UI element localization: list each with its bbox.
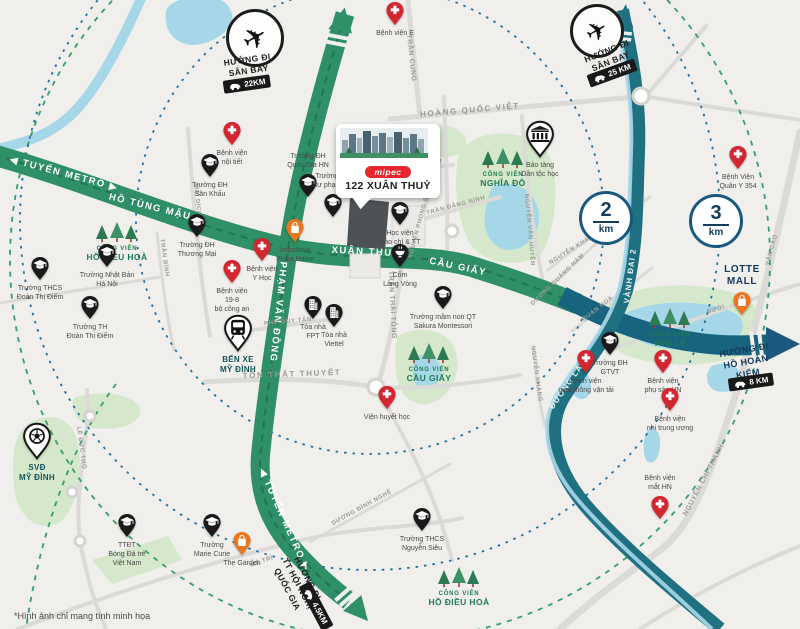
trees-icon <box>437 567 481 589</box>
poi-label: LOTTE MALL <box>682 264 800 288</box>
poi-label: Bệnh viện 19-8 bộ công an <box>172 287 292 314</box>
school-pin-icon <box>600 331 620 356</box>
project-building-image <box>340 128 428 158</box>
trees-icon <box>95 222 139 244</box>
museum-pin-icon <box>525 120 555 158</box>
poi-label: Trường ĐH GTVT <box>550 359 670 377</box>
poi-label: Bệnh viện mắt HN <box>600 474 720 492</box>
poi-label: Trường Marie Curie <box>152 541 272 559</box>
hospital-pin-icon <box>660 387 680 412</box>
school-pin-icon <box>30 256 50 281</box>
school-pin-icon <box>200 153 220 178</box>
school-pin-icon <box>117 513 137 538</box>
poi-label: SVĐ MỸ ĐÌNH <box>0 463 97 484</box>
hospital-pin-icon <box>650 495 670 520</box>
poi-label: Bệnh Viện Quân Y 354 <box>678 173 798 191</box>
mall-pin-icon <box>285 218 305 243</box>
park-label: CÔNG VIÊNHỒ ĐIỀU HOÀ <box>404 591 514 607</box>
poi-label: Tòa nhà Viettel <box>274 331 394 349</box>
school-pin-icon <box>187 213 207 238</box>
poi-label: Indochina Plaza Hanoi <box>235 246 355 264</box>
car-icon <box>303 587 316 602</box>
park-label: CÔNG VIÊNCẦU GIẤY <box>374 367 484 383</box>
trees-icon <box>648 308 692 330</box>
mall-pin-icon <box>732 291 752 316</box>
hospital-pin-icon <box>377 385 397 410</box>
distance-badge-3km: 3km <box>689 194 743 248</box>
office-pin-icon <box>324 303 344 328</box>
project-title: 122 XUÂN THUỶ <box>340 180 436 192</box>
distance-unit: km <box>599 223 613 236</box>
mall-pin-icon <box>232 531 252 556</box>
poi-label: Trường THCS Nguyễn Siêu <box>362 535 482 553</box>
bowl-pin-icon <box>390 243 410 268</box>
trees-icon <box>407 343 451 365</box>
school-pin-icon <box>390 201 410 226</box>
school-pin-icon <box>202 513 222 538</box>
hospital-pin-icon <box>222 121 242 146</box>
project-callout[interactable]: mipec 122 XUÂN THUỶ <box>336 124 440 198</box>
location-map: ◀ TUYẾN METRO ▶HỒ TÙNG MẬUXUÂN THUỶCẦU G… <box>0 0 800 629</box>
school-pin-icon <box>97 243 117 268</box>
park-label: CÔNG VIÊNTHỦ LỆ <box>615 332 725 348</box>
school-pin-icon <box>412 507 432 532</box>
poi-label: Bệnh viện E <box>335 29 455 38</box>
school-pin-icon <box>433 285 453 310</box>
distance-unit: km <box>709 226 723 239</box>
office-pin-icon <box>303 295 323 320</box>
poi-label: Viện huyết học <box>327 413 447 422</box>
poi-label: Bệnh viện Y Học <box>202 265 322 283</box>
poi-label: Trường mầm non QT Sakura Montessori <box>383 313 503 331</box>
poi-label: BẾN XE MỸ ĐÌNH <box>178 355 298 376</box>
poi-label: Bệnh viện nhi trung ương <box>610 415 730 433</box>
distance-value: 2 <box>593 200 618 223</box>
hospital-pin-icon <box>728 145 748 170</box>
poi-label: Trường TH Đoàn Thị Điểm <box>30 323 150 341</box>
bus-pin-icon <box>223 314 253 352</box>
car-icon <box>733 379 747 389</box>
soccer-pin-icon <box>22 422 52 460</box>
car-icon <box>592 72 607 84</box>
car-icon <box>228 81 242 91</box>
distance-value: 3 <box>703 203 728 226</box>
poi-label: Trường ĐH Sân Khấu <box>150 181 270 199</box>
mipec-logo: mipec <box>365 166 410 178</box>
disclaimer-note: *Hình ảnh chỉ mang tính minh họa <box>14 611 150 621</box>
distance-badge-2km: 2km <box>579 191 633 245</box>
hospital-pin-icon <box>385 1 405 26</box>
school-pin-icon <box>80 295 100 320</box>
poi-label: Bảo tàng Dân tộc học <box>480 161 600 179</box>
